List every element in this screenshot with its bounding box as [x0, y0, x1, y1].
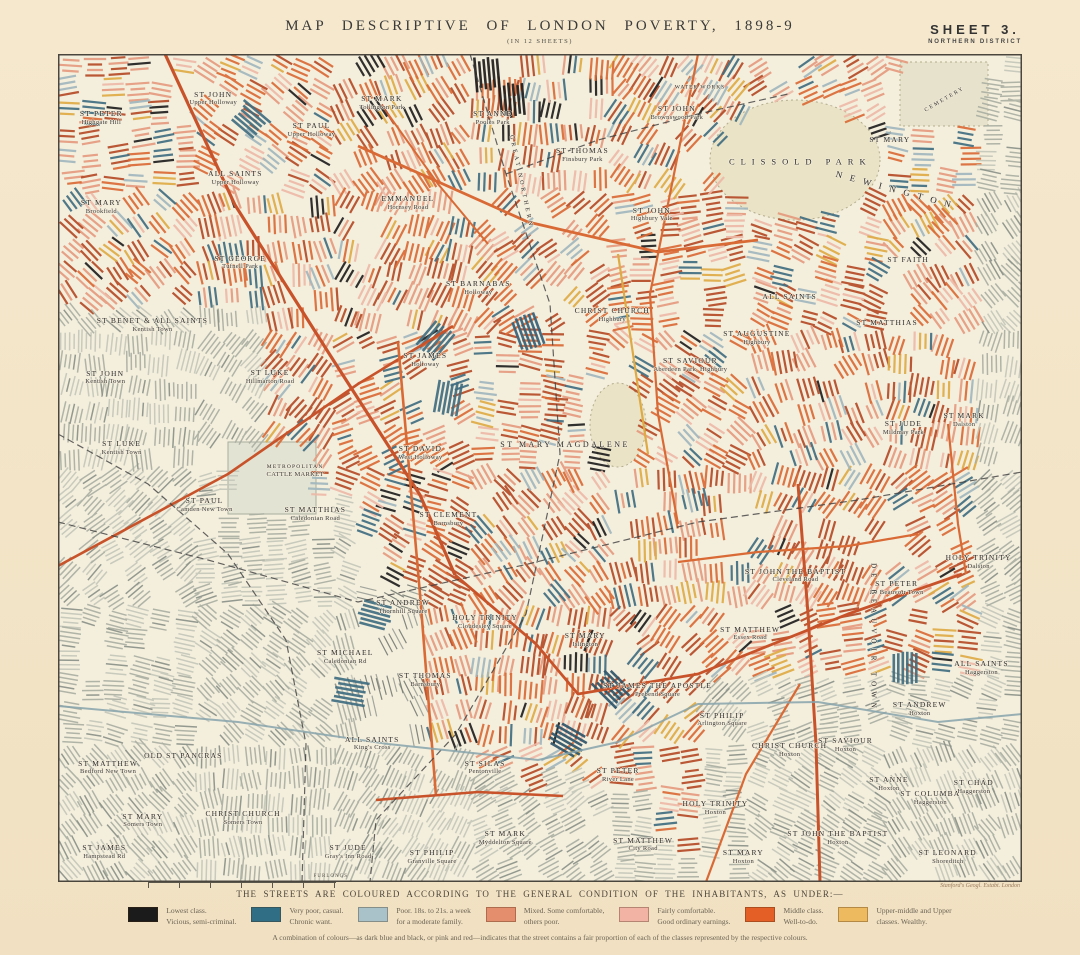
legend-label-line1: Lowest class. — [166, 906, 236, 917]
legend-label-line2: for a moderate family. — [396, 917, 471, 928]
legend-label-line1: Middle class. — [783, 906, 823, 917]
map-sheet: MAP DESCRIPTIVE OF LONDON POVERTY, 1898-… — [0, 0, 1080, 955]
legend-label: Mixed. Some comfortable, others poor. — [524, 906, 604, 927]
map-label: ALL SAINTS — [762, 292, 816, 302]
legend-item: Very poor, casual. Chronic want. — [251, 906, 343, 927]
map-label: ST JOHN THE BAPTISTHoxton — [787, 829, 888, 847]
map-label: ST MARY — [869, 135, 910, 145]
map-labels-layer: ST PETERHighgate HillST JOHNUpper Hollow… — [58, 54, 1022, 882]
map-label: ST CHADHaggerston — [954, 778, 994, 796]
map-label: ST DAVIDWest Holloway — [398, 444, 442, 462]
map-label: ST MARY MAGDALENE — [500, 440, 630, 450]
map-label: ST CLEMENTBarnsbury — [419, 510, 477, 528]
map-label: CHRIST CHURCHHighbury — [575, 306, 650, 324]
map-label: HOLY TRINITYHoxton — [682, 799, 748, 817]
legend-label-line2: Vicious, semi-criminal. — [166, 917, 236, 928]
map-label: ST ANDREWHoxton — [893, 700, 947, 718]
map-label: ALL SAINTSUpper Holloway — [208, 169, 262, 187]
map-label: ST MATTHEWEssex Road — [720, 625, 780, 643]
map-label: ST ANDREWThornhill Square — [376, 598, 430, 616]
map-area: ST PETERHighgate HillST JOHNUpper Hollow… — [58, 54, 1022, 882]
title-block: MAP DESCRIPTIVE OF LONDON POVERTY, 1898-… — [58, 18, 1022, 45]
map-label: ST PETERHighgate Hill — [80, 109, 123, 127]
legend-swatch — [486, 907, 516, 922]
map-label: ALL SAINTSKing's Cross — [345, 735, 399, 753]
map-label: ST JOHNUpper Holloway — [189, 90, 237, 108]
map-label: ST JAMESHampstead Rd — [82, 843, 126, 861]
map-label: GREAT NORTHERN — [506, 135, 533, 230]
legend-label: Middle class. Well-to-do. — [783, 906, 823, 927]
sheet-number: SHEET 3. — [928, 22, 1022, 37]
map-label: NEWINGTON — [834, 169, 960, 213]
map-label: ST COLUMBAHaggerston — [900, 789, 960, 807]
map-label: HOLY TRINITYDalston — [946, 553, 1012, 571]
legend-item: Middle class. Well-to-do. — [745, 906, 823, 927]
map-label: ST MARYHoxton — [723, 848, 764, 866]
map-label: CLISSOLD PARK — [729, 156, 872, 167]
map-label: ST MATTHEWCity Road — [613, 836, 673, 854]
map-label: ST SAVIOURAberdeen Park, Highbury — [653, 356, 727, 374]
map-label: ST THOMASFinsbury Park — [556, 146, 609, 164]
map-label: ST PETERDe Beauvoir Town — [870, 579, 924, 597]
legend-label-line2: Well-to-do. — [783, 917, 823, 928]
map-label: ST GEORGETufnell Park — [214, 254, 266, 272]
legend-label: Lowest class. Vicious, semi-criminal. — [166, 906, 236, 927]
legend-label-line1: Very poor, casual. — [289, 906, 343, 917]
legend-swatch — [251, 907, 281, 922]
legend-swatch — [745, 907, 775, 922]
legend-label-line1: Poor. 18s. to 21s. a week — [396, 906, 471, 917]
map-label: ST LUKEHillmarton Road — [246, 368, 294, 386]
map-label: OLD ST PANCRAS — [144, 751, 223, 761]
map-label: ST AUGUSTINEHighbury — [723, 329, 790, 347]
scale-bar: FURLONGS — [148, 882, 336, 888]
legend-label: Fairly comfortable. Good ordinary earnin… — [657, 906, 730, 927]
map-label: ST LUKEKentish Town — [102, 439, 142, 457]
map-label: ST JOHNHighbury Vale — [631, 206, 673, 224]
legend-item: Lowest class. Vicious, semi-criminal. — [128, 906, 236, 927]
legend-item: Poor. 18s. to 21s. a week for a moderate… — [358, 906, 471, 927]
map-label: ST PETERRiver Lane — [597, 766, 640, 784]
page-subtitle: (IN 12 SHEETS) — [58, 38, 1022, 45]
map-label: ST MATTHIASCaledonian Road — [285, 505, 347, 523]
map-label: ST JUDEGray's Inn Road — [325, 843, 372, 861]
map-label: ST THOMASBarnsbury — [399, 671, 452, 689]
map-label: HOLY TRINITYCloudesley Square — [452, 613, 518, 631]
legend-item: Upper-middle and Upper classes. Wealthy. — [838, 906, 951, 927]
map-label: ST MATTHEWBedford New Town — [78, 759, 138, 777]
map-label: ST PAULUpper Holloway — [288, 121, 336, 139]
map-label: CEMETERY — [923, 85, 966, 114]
legend-swatch — [838, 907, 868, 922]
map-label: ST MARYIslington — [565, 631, 606, 649]
map-label: ST JUDEMildmay Park — [883, 419, 924, 437]
map-label: ST JOHNKentish Town — [85, 369, 125, 387]
map-label: ST MICHAELCaledonian Rd — [317, 648, 374, 666]
map-label: ST MARKDalston — [943, 411, 984, 429]
legend-swatch — [358, 907, 388, 922]
legend-label-line2: Good ordinary earnings. — [657, 917, 730, 928]
legend-label-line2: others poor. — [524, 917, 604, 928]
legend: THE STREETS ARE COLOURED ACCORDING TO TH… — [0, 889, 1080, 942]
map-label: ST SILASPentonville — [465, 759, 506, 777]
map-label: METROPOLITANCATTLE MARKET — [267, 464, 324, 480]
map-label: ST MATTHIAS — [856, 318, 918, 328]
legend-label-line1: Mixed. Some comfortable, — [524, 906, 604, 917]
legend-items: Lowest class. Vicious, semi-criminal. Ve… — [0, 906, 1080, 927]
legend-swatch — [128, 907, 158, 922]
map-label: ST FAITH — [887, 255, 929, 265]
legend-item: Mixed. Some comfortable, others poor. — [486, 906, 604, 927]
map-label: ST LEONARDShoreditch — [919, 848, 977, 866]
legend-item: Fairly comfortable. Good ordinary earnin… — [619, 906, 730, 927]
map-label: ST MARYSomers Town — [122, 812, 163, 830]
legend-label-line1: Fairly comfortable. — [657, 906, 730, 917]
map-label: CHRIST CHURCHHoxton — [752, 741, 827, 759]
legend-label-line1: Upper-middle and Upper — [876, 906, 951, 917]
map-label: ST JOHN THE BAPTISTCleveland Road — [745, 567, 846, 585]
map-label: ST MARKTollington Park — [359, 94, 404, 112]
map-label: ST ANNEPooles Park — [473, 109, 512, 127]
map-label: ST PHILIPGranville Square — [408, 848, 457, 866]
legend-footnote: A combination of colours—as dark blue an… — [0, 933, 1080, 942]
map-label: ST MARKMyddelton Square — [479, 829, 532, 847]
scale-label: FURLONGS — [314, 874, 348, 879]
map-label: ST JAMES THE APOSTLEPrebend Square — [603, 681, 712, 699]
map-label: ST JAMESHolloway — [403, 351, 447, 369]
map-label: ST ANNEHoxton — [869, 775, 908, 793]
map-label: CHRIST CHURCHSomers Town — [205, 809, 280, 827]
map-label: ST MARYBrookfield — [81, 198, 122, 216]
map-label: WATER WORKS — [675, 84, 725, 91]
district-name: NORTHERN DISTRICT — [928, 39, 1022, 45]
map-label: ST PAULCamden New Town — [176, 496, 232, 514]
sheet-info: SHEET 3. NORTHERN DISTRICT — [928, 22, 1022, 45]
map-label: ST BENET & ALL SAINTSKentish Town — [97, 316, 208, 334]
map-label: ST JOHNBrownswood Park — [651, 104, 704, 122]
map-label: ST BARNABASHolloway — [446, 279, 511, 297]
legend-label: Upper-middle and Upper classes. Wealthy. — [876, 906, 951, 927]
legend-swatch — [619, 907, 649, 922]
legend-label-line2: Chronic want. — [289, 917, 343, 928]
legend-label: Very poor, casual. Chronic want. — [289, 906, 343, 927]
map-label: ST PHILIPArlington Square — [697, 711, 747, 729]
legend-label: Poor. 18s. to 21s. a week for a moderate… — [396, 906, 471, 927]
page-title: MAP DESCRIPTIVE OF LONDON POVERTY, 1898-… — [58, 18, 1022, 35]
legend-heading: THE STREETS ARE COLOURED ACCORDING TO TH… — [0, 889, 1080, 899]
map-label: ST SAVIOURHoxton — [818, 736, 873, 754]
map-label: DE BEAUVOIR TOWN — [868, 563, 877, 713]
legend-label-line2: classes. Wealthy. — [876, 917, 951, 928]
map-label: EMMANUELHornsey Road — [381, 194, 434, 212]
map-label: ALL SAINTSHaggerston — [954, 659, 1008, 677]
